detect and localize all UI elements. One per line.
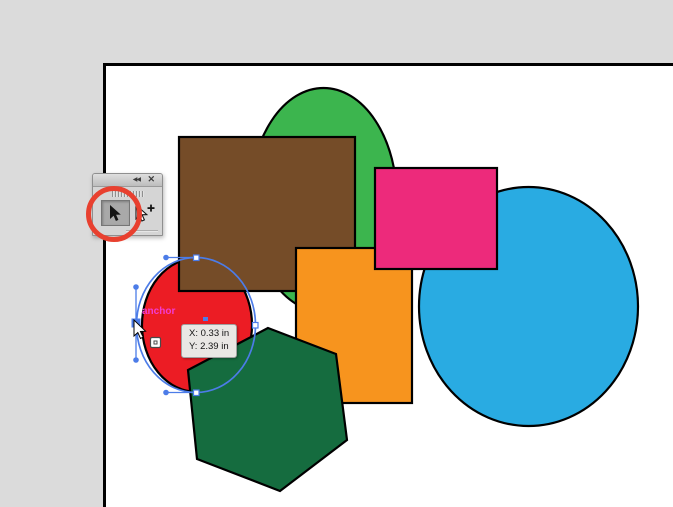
close-icon[interactable]: ✕ (147, 174, 155, 185)
palette-titlebar[interactable]: ◀◀ ✕ (93, 174, 162, 187)
artboard-left-border (103, 63, 106, 507)
tooltip-x-value: X: 0.33 in (189, 327, 229, 340)
direction-handle-dot[interactable] (163, 390, 169, 396)
anchor-point-right[interactable] (253, 323, 259, 329)
document-canvas[interactable] (0, 0, 673, 507)
anchor-point-top[interactable] (194, 255, 200, 261)
annotation-ring (86, 186, 142, 242)
tooltip-y-value: Y: 2.39 in (189, 340, 229, 353)
direction-handle-dot[interactable] (133, 357, 139, 363)
shape-pink-rectangle[interactable] (375, 168, 497, 269)
path-midpoint-marker (203, 317, 208, 321)
anchor-hint-label: anchor (142, 306, 175, 317)
measurement-tooltip: X: 0.33 in Y: 2.39 in (181, 324, 237, 358)
anchor-point-bottom[interactable] (194, 390, 200, 396)
artboard-top-border (103, 63, 673, 66)
direction-handle-dot[interactable] (163, 255, 169, 261)
anchor-point-indicator-icon (151, 338, 161, 348)
collapse-panel-icon[interactable]: ◀◀ (133, 175, 140, 185)
direction-handle-dot[interactable] (133, 284, 139, 290)
